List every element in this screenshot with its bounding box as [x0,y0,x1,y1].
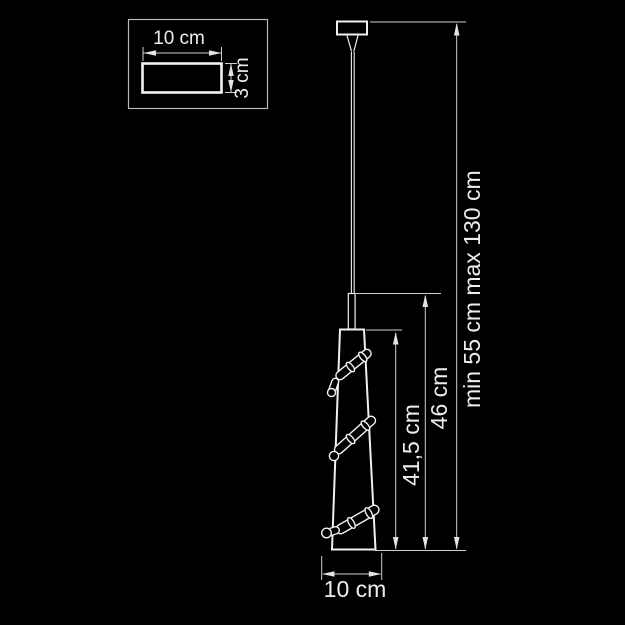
canopy-cone [347,36,358,52]
label-max-suspension: max 130 cm [459,153,485,313]
label-diameter: 10 cm [295,576,415,602]
inset-height-label: 3 cm [232,18,254,138]
pendant-canopy [337,22,367,35]
inset-width-label: 10 cm [119,28,239,50]
suspension-cable [351,52,354,293]
pendant-lamp-dimension-drawing: 10 cm 3 cm 41,5 cm 46 cm min 55 cm max 1… [0,0,625,625]
label-total-shade-height: 46 cm [426,328,452,468]
label-shade-height: 41,5 cm [398,375,424,515]
drawing-linework [0,0,625,625]
pendant-lamp [322,22,382,550]
shade-neck [348,294,355,330]
canopy-plate [143,64,222,93]
